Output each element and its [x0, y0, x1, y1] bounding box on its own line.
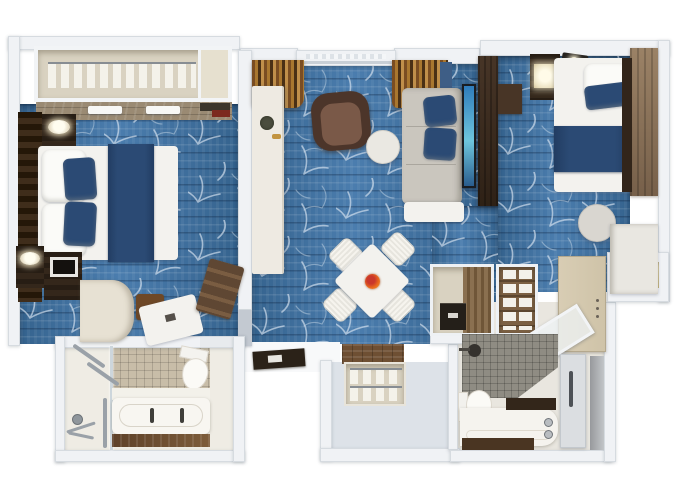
- minibar-appliance: [440, 303, 466, 330]
- door-dot-1: [596, 299, 599, 302]
- wall-light-right: [146, 106, 180, 114]
- vanity-wood-shelf: [506, 398, 556, 410]
- flower-centerpiece: [365, 274, 380, 289]
- sofa-seam-2: [406, 164, 456, 165]
- sofa-pillow-navy-1: [423, 94, 458, 127]
- bedroom-tv: [50, 257, 78, 277]
- shower-arm-2: [459, 348, 470, 351]
- door-dot-2: [596, 307, 599, 310]
- living-room-tv: [462, 84, 476, 188]
- closet-side-shelf: [201, 50, 228, 98]
- bed-pillow-navy-2: [63, 201, 97, 247]
- shower-head: [72, 414, 83, 425]
- bathtub-basin-outline: [119, 404, 203, 427]
- console-plant: [260, 116, 274, 130]
- balcony-door-track: [300, 61, 392, 64]
- vanity-faucet-2: [544, 430, 553, 439]
- entry-hangers-row-1: [350, 368, 402, 384]
- desk-item: [165, 313, 176, 322]
- dark-alcove: [590, 356, 604, 450]
- vestibule-right-wall: [448, 344, 458, 450]
- tub-faucet-2: [180, 408, 184, 423]
- shower-pole: [103, 398, 107, 448]
- minibar-wood-side: [463, 267, 491, 333]
- vanity-faucet-1: [544, 418, 553, 427]
- floorplan-canvas: [0, 0, 680, 486]
- entry-hangers-row-2: [350, 386, 402, 401]
- door-dot-3: [596, 315, 599, 318]
- towel-closet: [496, 264, 538, 336]
- master-closet: [34, 46, 232, 102]
- armchair: [310, 90, 373, 153]
- sofa-end-table: [404, 202, 464, 222]
- bedroom2-lamp: [534, 64, 556, 88]
- bathroom2-door: [560, 354, 586, 448]
- vestibule-left-wall: [320, 360, 332, 460]
- appliance-label: [448, 313, 458, 318]
- bedroom2-bed-frame-edge: [622, 58, 632, 192]
- bedroom2-runner-navy: [554, 126, 630, 172]
- tub-faucet-1: [150, 408, 154, 423]
- closet-red-item: [212, 110, 230, 117]
- bathroom2-bottom-wall: [450, 450, 612, 462]
- towel-stack-left: [503, 270, 516, 330]
- entry-wood-floor: [342, 344, 404, 364]
- balcony-door: [296, 50, 396, 66]
- bathroom1-right-wall: [233, 336, 245, 462]
- round-side-table: [366, 130, 400, 164]
- towel-stack-right: [519, 270, 532, 330]
- bathroom1-bottom-wall: [55, 450, 245, 462]
- bathroom2-door-handle: [569, 371, 573, 407]
- minibar-closet: [430, 264, 494, 336]
- doormat: [252, 348, 305, 370]
- bed-pillow-navy-1: [63, 157, 98, 201]
- bedroom2-wall-cabinet: [498, 84, 522, 114]
- tub-wood-apron: [112, 434, 210, 447]
- entry-hanger-closet: [344, 362, 406, 406]
- nightstand-lamp-bottom: [20, 252, 40, 265]
- console-gold-items: [272, 134, 281, 139]
- doormat-card: [268, 355, 282, 363]
- bathtub: [112, 398, 210, 434]
- vestibule-bottom-wall: [320, 448, 460, 462]
- bathroom1-left-wall: [55, 336, 65, 462]
- sofa-pillow-navy-2: [423, 127, 457, 161]
- living-bedroom2-wood-wall: [478, 56, 498, 206]
- console-desk: [252, 86, 284, 274]
- armchair-seat: [320, 101, 364, 146]
- nightstand-lamp-top: [48, 120, 70, 134]
- bathroom1-door-opening: [200, 337, 236, 347]
- closet-hangers: [48, 62, 196, 88]
- bedroom2-headboard-panel: [630, 48, 658, 196]
- wardrobe-cabinet: [80, 280, 134, 342]
- balcony-door-vent: [306, 54, 386, 59]
- bedroom2-dresser: [610, 224, 658, 294]
- tv-screen: [464, 86, 474, 186]
- bed-runner-navy: [108, 144, 154, 262]
- vanity-wood-base: [462, 438, 534, 450]
- wall-light-left: [88, 106, 122, 114]
